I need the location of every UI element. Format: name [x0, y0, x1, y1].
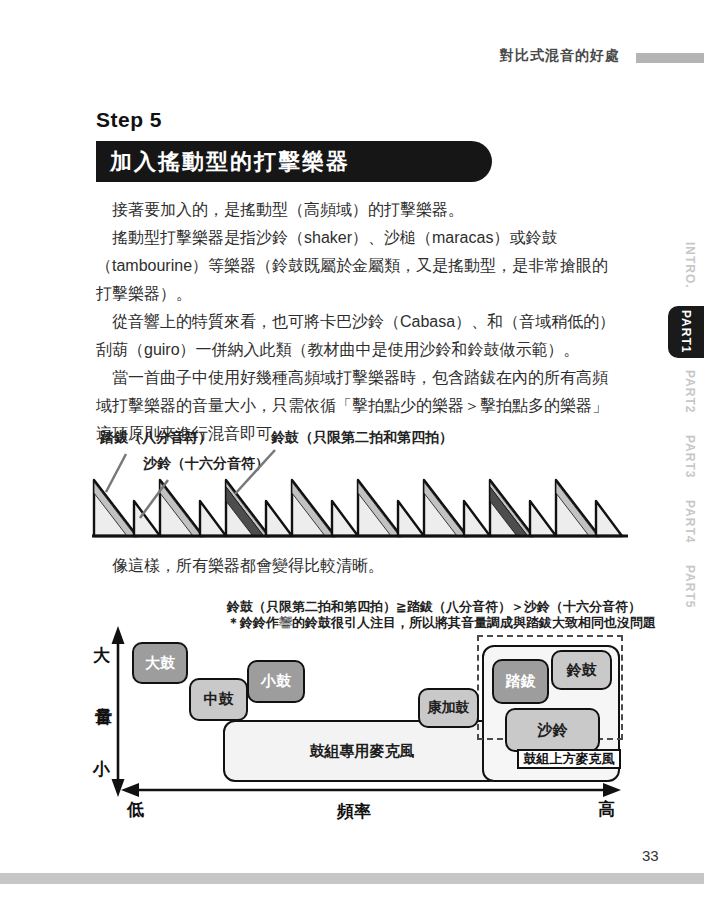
- box-tambourine: 鈴鼓: [551, 650, 612, 690]
- box-conga: 康加鼓: [418, 688, 479, 728]
- x-axis-left-label: 低: [127, 798, 144, 821]
- header-decoration-bar: [636, 53, 704, 63]
- y-axis-down-arrow: [112, 779, 125, 797]
- box-snare: 小鼓: [247, 660, 305, 703]
- sixteenth-note-triangle: [398, 501, 424, 536]
- box-shaker: 沙鈴: [505, 708, 600, 752]
- sixteenth-note-triangle: [332, 501, 358, 536]
- y-axis-top-label: 大: [93, 644, 110, 667]
- sidebar-item-part3: PART3: [683, 435, 697, 478]
- leader-line-hihat: [106, 454, 126, 492]
- box-drums-mic: 鼓組專用麥克風: [223, 720, 501, 782]
- x-axis-right-label: 高: [598, 798, 615, 821]
- eighth-note-triangle: [556, 480, 599, 536]
- y-axis-up-arrow: [112, 626, 125, 644]
- x-axis-left-arrow: [121, 783, 139, 797]
- y-axis-title: 音量: [92, 693, 115, 697]
- paragraph: 從音響上的特質來看，也可將卡巴沙鈴（Cabasa）、和（音域稍低的）刮葫（gui…: [96, 308, 618, 364]
- x-axis-right-arrow: [603, 783, 621, 797]
- sixteenth-note-triangle: [200, 501, 226, 536]
- middle-text: 像這樣，所有樂器都會變得比較清晰。: [96, 556, 618, 577]
- eighth-note-triangle: [94, 480, 137, 536]
- sidebar-item-intro: INTRO.: [683, 242, 697, 289]
- sixteenth-note-triangle: [266, 501, 292, 536]
- sixteenth-note-triangle: [464, 501, 490, 536]
- box-overhead-mic-label: 鼓組上方麥克風: [517, 749, 621, 769]
- footer-decoration-bar: [0, 873, 704, 884]
- eighth-note-triangle: [160, 480, 203, 536]
- sidebar-item-part1-label: PART1: [679, 310, 693, 353]
- sixteenth-note-triangle: [134, 501, 160, 536]
- y-axis-bottom-label: 小: [93, 758, 110, 781]
- paragraph: 接著要加入的，是搖動型（高頻域）的打擊樂器。: [96, 196, 618, 224]
- section-title-banner: 加入搖動型的打擊樂器: [96, 141, 492, 182]
- box-tom: 中鼓: [189, 678, 248, 721]
- step-label: Step 5: [96, 108, 162, 132]
- eighth-note-triangle: [424, 480, 467, 536]
- box-kick-drum: 大鼓: [132, 642, 188, 684]
- x-axis-title: 頻率: [337, 800, 371, 823]
- running-header: 對比式混音的好處: [500, 47, 620, 65]
- book-page: 對比式混音的好處 INTRO. PART1 PART2 PART3 PART4 …: [0, 0, 704, 900]
- eighth-note-triangle: [292, 480, 335, 536]
- sidebar-item-part5: PART5: [683, 565, 697, 608]
- sidebar-item-part1: PART1: [668, 306, 704, 358]
- leader-line-tambourine: [235, 450, 275, 494]
- waveform-figure: [92, 426, 632, 544]
- frequency-volume-chart: 鈴鼓（只限第二拍和第四拍）≧踏鈸（八分音符）＞沙鈴（十六分音符） ＊鈴鈴作響的鈴…: [85, 598, 657, 830]
- sixteenth-note-triangle: [530, 501, 556, 536]
- sidebar-item-part2: PART2: [683, 370, 697, 413]
- sidebar-item-part4: PART4: [683, 500, 697, 543]
- paragraph: 搖動型打擊樂器是指沙鈴（shaker）、沙槌（maracas）或鈴鼓（tambo…: [96, 224, 618, 308]
- sixteenth-note-triangle: [596, 501, 622, 536]
- box-hihat: 踏鈸: [492, 659, 549, 704]
- eighth-note-triangle: [358, 480, 401, 536]
- body-text: 接著要加入的，是搖動型（高頻域）的打擊樂器。 搖動型打擊樂器是指沙鈴（shake…: [96, 196, 618, 448]
- page-number: 33: [642, 847, 659, 864]
